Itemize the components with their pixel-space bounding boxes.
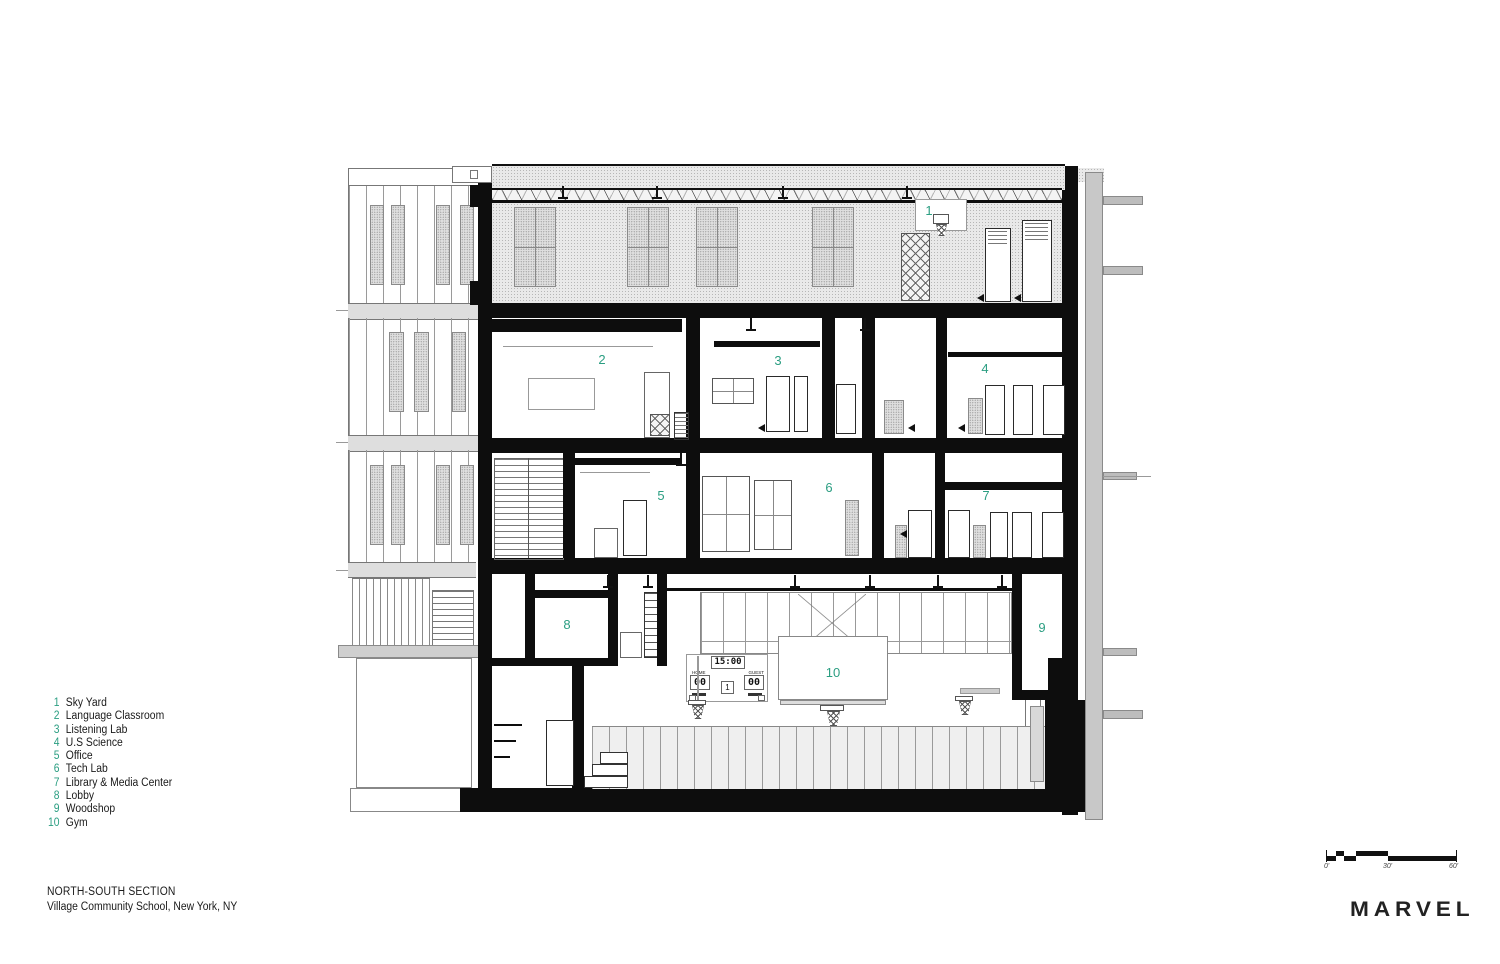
skyyard-brick-wall — [492, 203, 1062, 303]
legend-item: 10Gym — [46, 817, 172, 830]
hoop-arm — [960, 688, 1000, 694]
partition-wall — [935, 453, 945, 558]
closet-door — [1043, 385, 1065, 435]
basketball-hoop-icon — [959, 701, 971, 715]
legend-number: 8 — [46, 790, 60, 802]
partition-wall — [822, 318, 835, 453]
drawing-title: NORTH-SOUTH SECTION — [47, 886, 237, 898]
wall-tab — [1103, 710, 1143, 719]
legend-item: 1Sky Yard — [46, 697, 172, 710]
scale-bar: 0' 30' 60' — [1326, 848, 1457, 872]
slab-skyyard — [478, 303, 1078, 318]
legend-label: Lobby — [66, 790, 94, 802]
legend-item: 3Listening Lab — [46, 724, 172, 737]
scale-label-start: 0' — [1324, 863, 1329, 870]
gym-stair-step — [592, 764, 628, 776]
closet-door — [1042, 512, 1064, 558]
slab-level3 — [478, 438, 1078, 453]
door-louver — [1025, 223, 1048, 241]
street-railing — [352, 578, 430, 646]
legend-item: 8Lobby — [46, 790, 172, 803]
legend-item: 7Library & Media Center — [46, 777, 172, 790]
scoreboard-home-score: 00 — [690, 675, 710, 690]
legend-number: 2 — [46, 710, 60, 722]
basketball-backboard — [955, 696, 973, 701]
room-label-1: 1 — [917, 203, 941, 218]
roof-door — [1022, 220, 1052, 302]
legend-label: Woodshop — [66, 803, 115, 815]
firm-logo: MARVEL — [1350, 898, 1475, 922]
legend: 1Sky Yard 2Language Classroom 3Listening… — [46, 697, 172, 830]
partition-wall — [563, 453, 575, 558]
low-cabinet — [968, 398, 983, 434]
legend-item: 2Language Classroom — [46, 710, 172, 723]
slab-level2 — [478, 558, 1078, 574]
door-leaf — [794, 376, 808, 432]
vault-base — [350, 788, 478, 812]
legend-label: Language Classroom — [66, 710, 164, 722]
party-wall-band — [1085, 172, 1103, 820]
legend-item: 5Office — [46, 750, 172, 763]
gym-end-panel — [1030, 706, 1044, 782]
door — [836, 384, 856, 434]
interior-window — [712, 378, 754, 404]
partition-wall — [862, 318, 875, 453]
stacked-mats — [674, 412, 689, 440]
skyyard-window — [696, 207, 738, 287]
pier — [845, 500, 859, 556]
gym-wainscot — [592, 726, 1048, 789]
legend-label: Sky Yard — [66, 697, 107, 709]
wall-tab — [1103, 648, 1137, 656]
ground-slab — [460, 788, 1085, 812]
legend-number: 6 — [46, 763, 60, 775]
legend-label: U.S Science — [66, 737, 123, 749]
window-wall — [754, 480, 792, 550]
legend-item: 9Woodshop — [46, 803, 172, 816]
legend-number: 3 — [46, 724, 60, 736]
door — [908, 510, 932, 558]
left-cut-wall — [478, 166, 492, 812]
facade-floor-band — [348, 562, 476, 578]
room-label-2: 2 — [590, 352, 614, 367]
hoop-pole — [697, 656, 699, 700]
section-drawing-sheet: 15:00 HOME 00 GUEST 00 1 — [0, 0, 1500, 964]
legend-label: Office — [66, 750, 93, 762]
wall-tab — [1103, 266, 1143, 275]
room-label-9: 9 — [1030, 620, 1054, 635]
drawing-subtitle: Village Community School, New York, NY — [47, 901, 237, 913]
crate — [650, 414, 670, 436]
skyyard-window — [812, 207, 854, 287]
room-label-4: 4 — [973, 361, 997, 376]
gym-stair-step — [600, 752, 628, 764]
sidewalk-vault — [356, 658, 472, 788]
legend-item: 6Tech Lab — [46, 763, 172, 776]
room-label-6: 6 — [817, 480, 841, 495]
window-wall — [702, 476, 750, 552]
lattice-gate — [901, 233, 930, 301]
sidewalk — [338, 645, 480, 658]
legend-item: 4U.S Science — [46, 737, 172, 750]
legend-label: Listening Lab — [66, 724, 128, 736]
scale-label-end: 60' — [1449, 863, 1458, 870]
legend-number: 5 — [46, 750, 60, 762]
title-block: NORTH-SOUTH SECTION Village Community Sc… — [47, 886, 237, 913]
legend-label: Gym — [66, 817, 88, 829]
legend-number: 1 — [46, 697, 60, 709]
scoreboard-clock: 15:00 — [711, 656, 745, 669]
door — [766, 376, 790, 432]
cellar-door — [546, 720, 574, 786]
door — [623, 500, 647, 556]
closet-door — [985, 385, 1005, 435]
room-label-5: 5 — [649, 488, 673, 503]
roof-door — [985, 228, 1011, 302]
door — [948, 510, 970, 558]
skyyard-window — [627, 207, 669, 287]
legend-number: 9 — [46, 803, 60, 815]
scale-label-mid: 30' — [1383, 863, 1392, 870]
partition-wall — [936, 318, 947, 453]
skyyard-window — [514, 207, 556, 287]
partition-wall — [872, 453, 884, 558]
legend-label: Tech Lab — [66, 763, 108, 775]
room-label-10: 10 — [821, 665, 845, 680]
scoreboard-period: 1 — [721, 681, 734, 694]
closet-door — [990, 512, 1008, 558]
legend-label: Library & Media Center — [66, 777, 172, 789]
legend-number: 7 — [46, 777, 60, 789]
legend-number: 10 — [46, 817, 60, 829]
basketball-hoop-icon — [827, 711, 840, 726]
room-label-3: 3 — [766, 353, 790, 368]
legend-number: 4 — [46, 737, 60, 749]
low-cabinet — [884, 400, 904, 434]
wall-tab — [1103, 196, 1143, 205]
cabinet — [594, 528, 618, 558]
basketball-backboard — [820, 705, 844, 711]
whiteboard — [528, 378, 595, 410]
exterior-stair — [432, 590, 474, 647]
stairwell — [494, 458, 564, 560]
room-label-7: 7 — [974, 488, 998, 503]
cabinet — [620, 632, 642, 658]
room-label-8: 8 — [555, 617, 579, 632]
closet-door — [1012, 512, 1032, 558]
partition-wall — [686, 453, 700, 558]
pier — [973, 525, 986, 558]
scoreboard-guest-score: 00 — [744, 675, 764, 690]
closet-door — [1013, 385, 1033, 435]
door-louver — [988, 231, 1007, 247]
gym-stair-step — [584, 776, 628, 788]
basketball-hoop-icon — [692, 705, 704, 719]
basketball-backboard — [688, 700, 706, 705]
